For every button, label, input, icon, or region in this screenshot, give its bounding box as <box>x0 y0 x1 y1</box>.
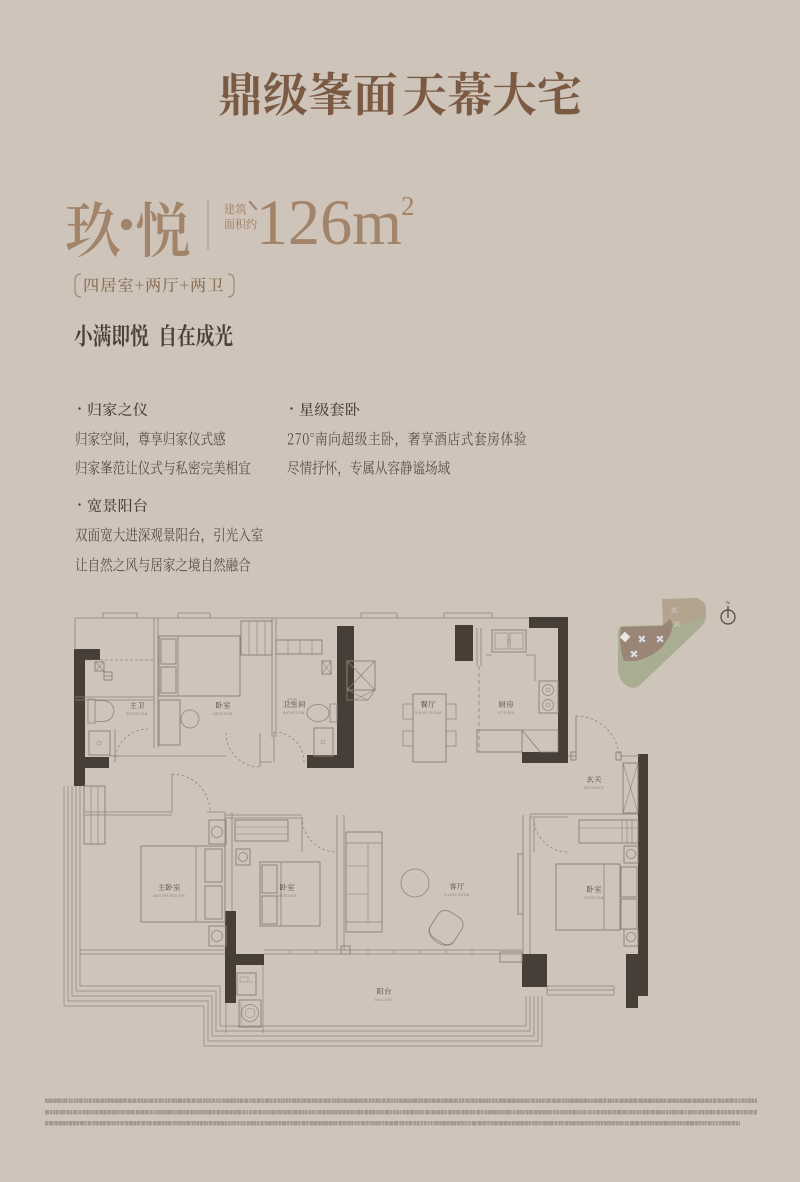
svg-text:BEDROOM: BEDROOM <box>584 896 603 900</box>
svg-text:126m: 126m <box>256 187 402 259</box>
svg-text:BEDROOM: BEDROOM <box>277 894 296 898</box>
svg-text:N: N <box>726 600 729 605</box>
svg-text:BALCONY: BALCONY <box>375 998 394 1002</box>
svg-text:DINING ROOM: DINING ROOM <box>415 711 441 715</box>
svg-text:BATHROOM: BATHROOM <box>283 711 304 715</box>
svg-text:BATHROOM: BATHROOM <box>126 712 147 716</box>
svg-text:2: 2 <box>401 191 415 221</box>
svg-text:BEDROOM: BEDROOM <box>213 712 232 716</box>
svg-text:KITCHEN: KITCHEN <box>498 711 515 715</box>
svg-text:MASTER BED RM: MASTER BED RM <box>153 894 185 898</box>
svg-text:ENTRANCE: ENTRANCE <box>584 786 605 790</box>
svg-text:LIVING ROOM: LIVING ROOM <box>444 893 470 897</box>
